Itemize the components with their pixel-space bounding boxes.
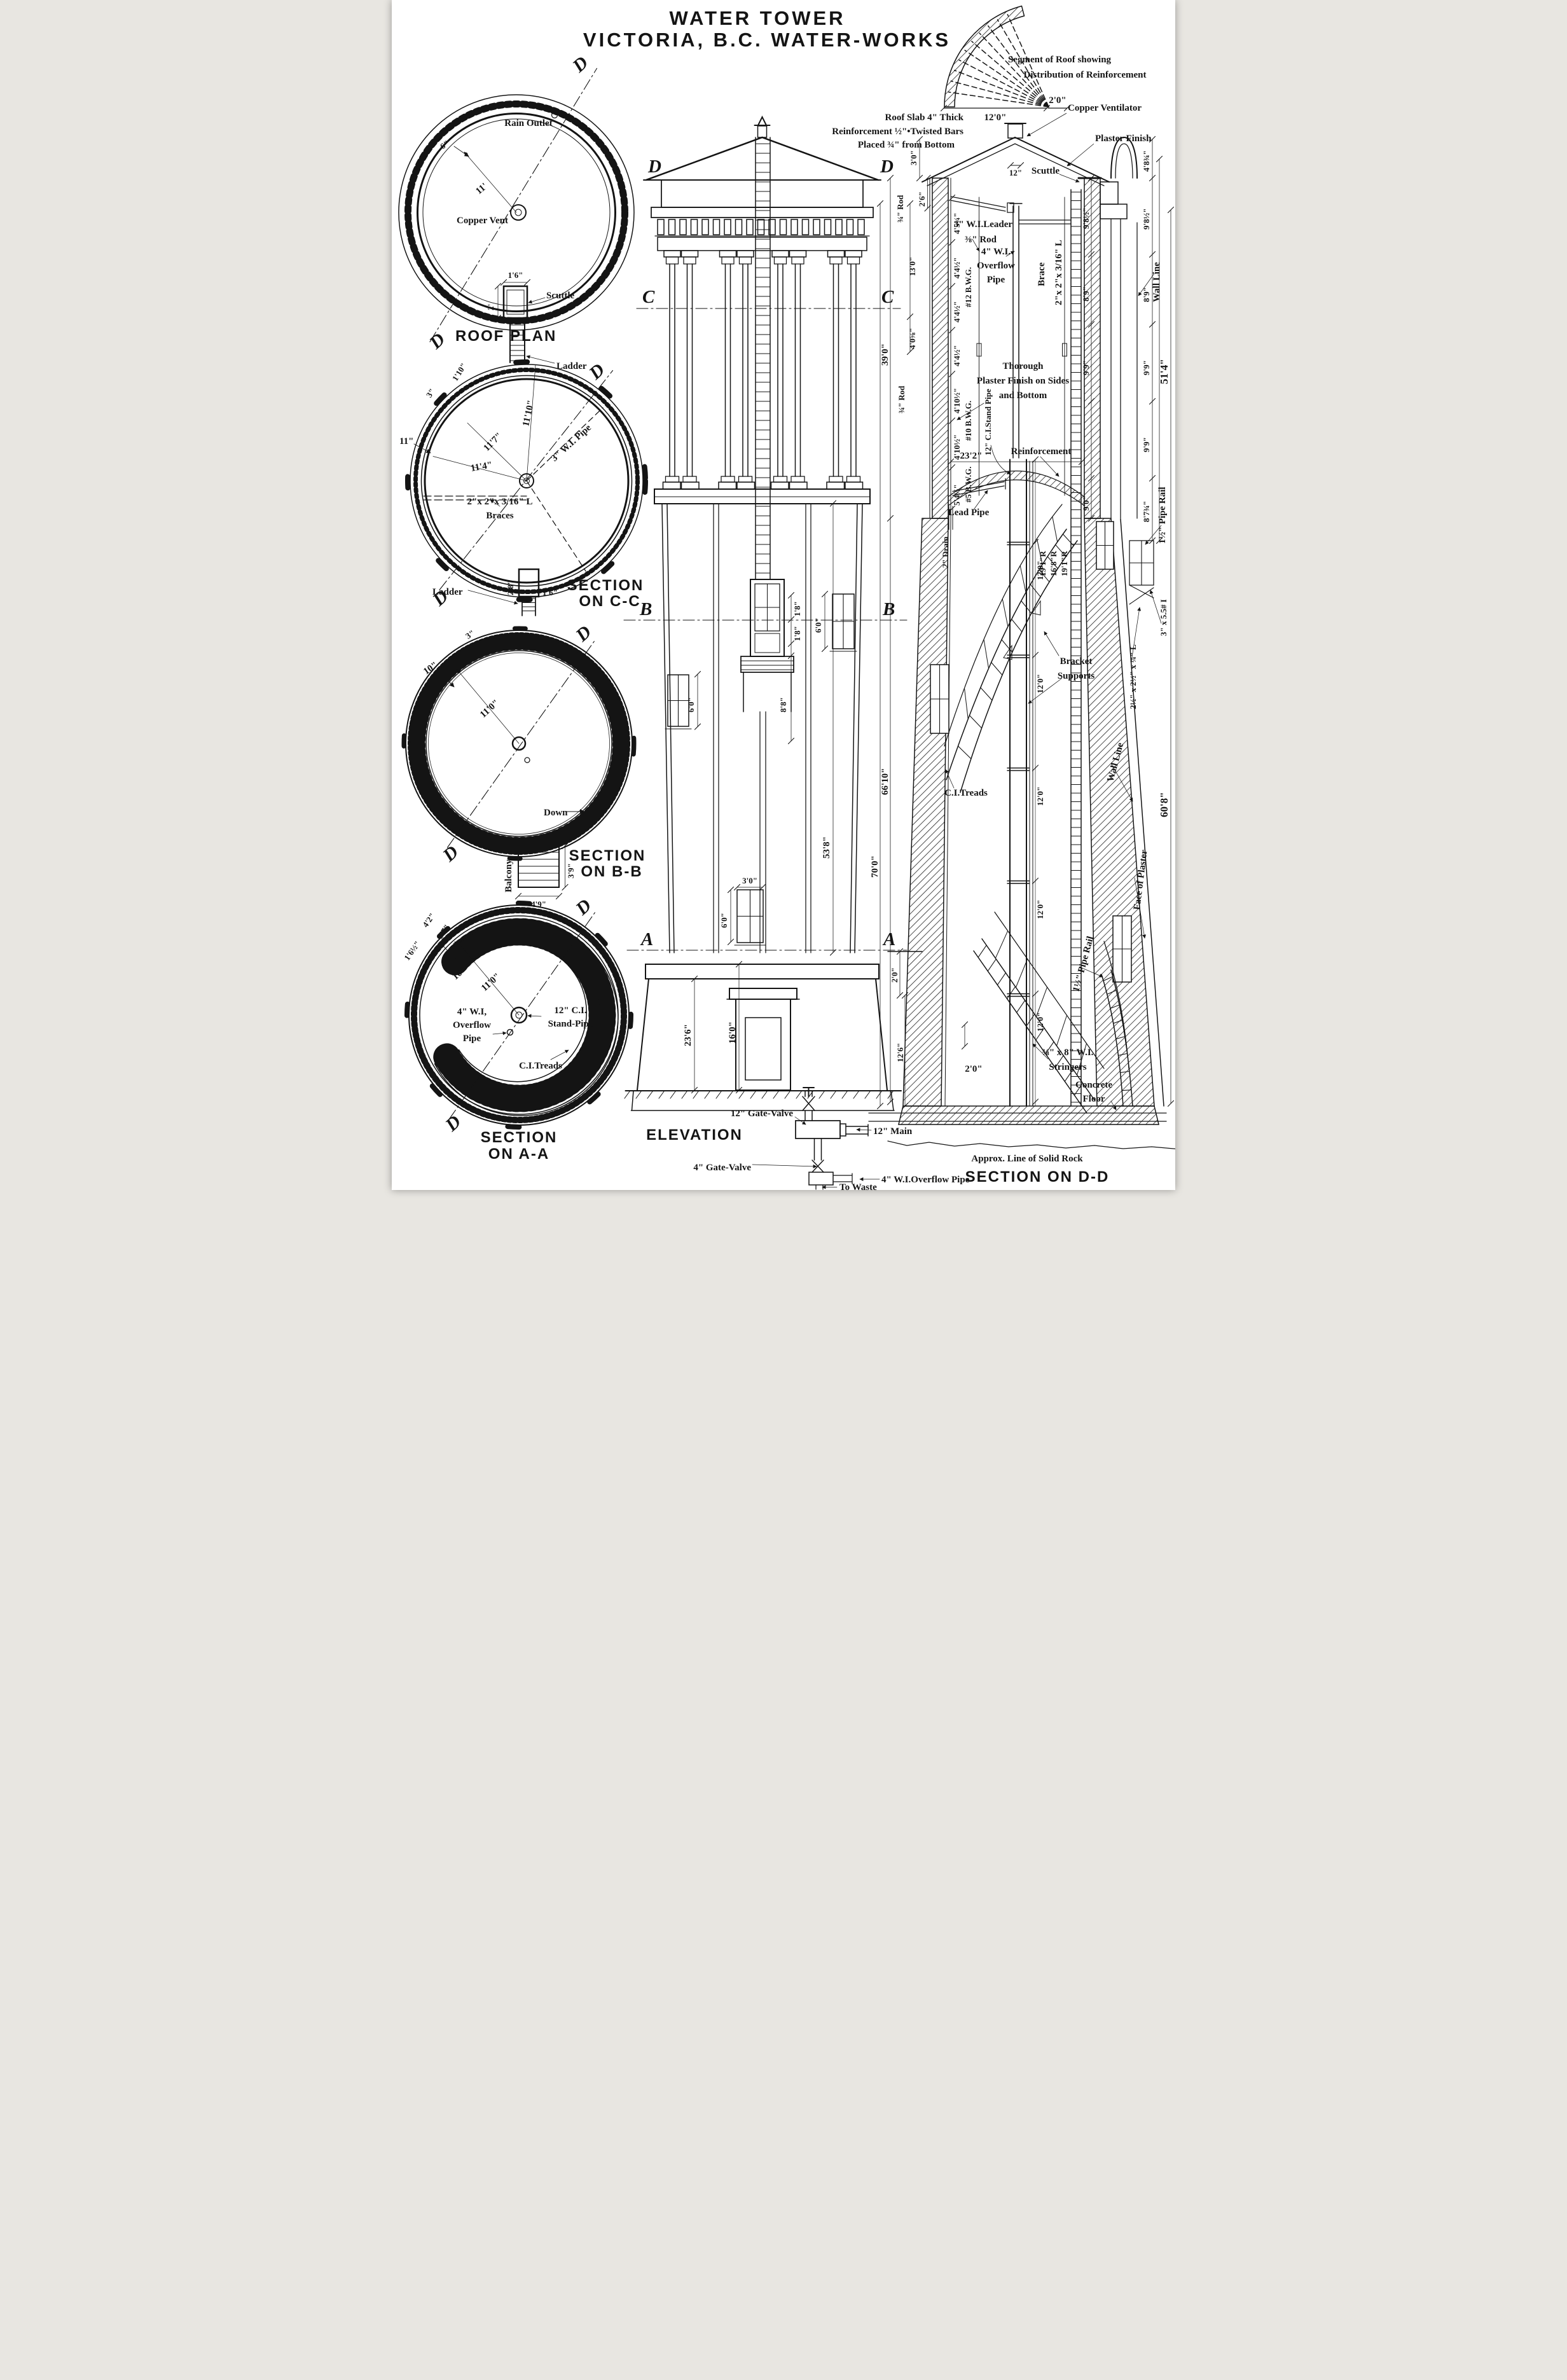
- dd-lead: Lead Pipe: [948, 508, 990, 518]
- dd-reinf: Reinforcement: [1011, 446, 1072, 457]
- ventilator-leader: [1027, 113, 1067, 136]
- bb-radius: 11'0": [478, 698, 501, 720]
- elevation-ladder-rungs: [756, 144, 770, 573]
- dd-rail2: 1½" Pipe Rail: [1071, 935, 1096, 993]
- segment-caption2: Distribution of Reinforcement: [1023, 70, 1146, 80]
- valve-assembly: [752, 1088, 880, 1189]
- cc-brace-size: 2"x 2"x 3/16" L: [467, 497, 533, 507]
- roof-note3: Placed ¾" from Bottom: [858, 140, 955, 150]
- rp-d1: D: [569, 52, 593, 77]
- ground-hatch: [625, 1091, 893, 1098]
- aa-ov3: Pipe: [463, 1034, 481, 1044]
- el-w18a: 1'8": [792, 601, 802, 616]
- cc-dim-sc-w: 1'6": [542, 588, 558, 597]
- el-w30: 3'0": [742, 876, 757, 885]
- bb-cap2: ON B-B: [581, 863, 642, 880]
- dentil-band: [658, 219, 864, 235]
- dd-brace: Brace: [1037, 262, 1047, 286]
- dd-co5: 8'7¾": [1142, 501, 1151, 522]
- title-line2: VICTORIA, B.C. WATER-WORKS: [583, 29, 951, 51]
- dd-caption: SECTION ON D-D: [965, 1168, 1110, 1186]
- rp-dim-scuttle-w: 1'6": [508, 270, 523, 280]
- rp-scuttle: Scuttle: [546, 291, 575, 301]
- roof-note1: Roof Slab 4" Thick: [885, 113, 963, 123]
- dd-br1: Bracket: [1060, 656, 1093, 667]
- dd-dim-rise: 3'0": [909, 150, 918, 165]
- aa-sp2: Stand-Pipe: [548, 1019, 593, 1029]
- aa-d2: D: [441, 1111, 466, 1136]
- dd-total-66: 66'10": [880, 768, 890, 796]
- dd-rod34b: ¾" Rod: [897, 385, 906, 413]
- dd-sp-dim0: 12'0": [1035, 561, 1045, 580]
- dd-bwg10: #10 B.W.G.: [963, 401, 973, 441]
- aa-ov2: Overflow: [453, 1020, 491, 1030]
- dd-dim-rod: 13'0": [908, 257, 917, 276]
- segment-caption1: Segment of Roof showing: [1008, 55, 1112, 65]
- dd-ci1: 8'9": [1081, 286, 1091, 301]
- el-d1: D: [647, 156, 661, 177]
- dd-sp-dim2: 12'0": [1035, 787, 1045, 806]
- el-gate4: 4" Gate-Valve: [693, 1163, 751, 1173]
- dd-ov1: 4" W.I.: [981, 247, 1011, 257]
- roof-note2: Reinforcement ½"•Twisted Bars: [832, 127, 963, 137]
- dd-g1: 4'5¼": [952, 212, 962, 234]
- dd-dim-depth: 39'0": [880, 343, 890, 366]
- el-waste: To Waste: [839, 1182, 877, 1190]
- dd-total-right: 60'8": [1158, 792, 1170, 817]
- dd-bwg5: #5 B.W.G.: [963, 466, 973, 502]
- dd-pl3: and Bottom: [999, 391, 1047, 401]
- bb-cap1: SECTION: [569, 847, 646, 864]
- dd-basement: 12'6": [895, 1043, 905, 1062]
- el-a1: A: [640, 929, 653, 950]
- dd-co2: 8'9": [1142, 287, 1151, 302]
- dd-dim-curb: 4'0⅝": [908, 328, 917, 349]
- aa-cap2: ON A-A: [488, 1145, 549, 1163]
- rp-copper-vent: Copper Vent: [457, 216, 508, 226]
- dd-standpipe: 12" C.I.Stand Pipe: [983, 389, 993, 455]
- colonnade: [663, 251, 863, 489]
- dd-grade: 2'0": [890, 967, 899, 983]
- bb-down: Down: [544, 808, 568, 818]
- aa-radius: 11'0": [480, 971, 502, 993]
- dd-co3: 9'9": [1142, 360, 1151, 375]
- elevation-drawing: [624, 117, 907, 1189]
- dd-br2: Supports: [1058, 671, 1095, 681]
- label-plaster-finish: Plaster Finish: [1095, 134, 1152, 144]
- cc-dim-sc-h: 2'8": [506, 580, 515, 595]
- aa-dim4: 1'6½": [402, 939, 422, 962]
- dd-treads: C.I.Treads: [944, 788, 988, 798]
- dd-angle: 2½" x 2½" x ¼" L: [1128, 644, 1138, 709]
- aa-cap1: SECTION: [481, 1129, 558, 1146]
- cc-r2: 11'7": [482, 431, 504, 453]
- dd-conc1: Concrete: [1075, 1080, 1112, 1090]
- dd-conc2: Floor: [1083, 1094, 1105, 1104]
- dd-ov2: Overflow: [977, 261, 1015, 271]
- rp-dim-scuttle-h: 2': [486, 304, 495, 310]
- plaster-leader: [1067, 144, 1094, 166]
- dd-str1: ⅜" x 8" W.I.: [1042, 1048, 1094, 1058]
- el-w18b: 1'8": [792, 626, 802, 641]
- title-line1: WATER TOWER: [669, 7, 845, 29]
- cc-braces: Braces: [486, 511, 513, 521]
- dd-bwg12: #12 B.W.G.: [963, 267, 973, 307]
- bb-dim-w: 4'9": [531, 899, 546, 909]
- bb-d2: D: [439, 841, 463, 866]
- cc-dim1: 1'10": [450, 361, 469, 383]
- dd-rock: Approx. Line of Solid Rock: [971, 1154, 1083, 1164]
- cc-dim2: 3": [424, 387, 437, 399]
- dd-ci2: 9'9": [1081, 360, 1091, 375]
- el-c2: C: [881, 287, 894, 307]
- rp-d2: D: [425, 329, 450, 354]
- dd-dim-free: 2'6": [917, 191, 927, 207]
- aa-ov1: 4" W.I,: [457, 1007, 487, 1017]
- bb-d1: D: [572, 621, 596, 646]
- rp-caption: ROOF PLAN: [455, 328, 556, 345]
- rp-dim-radius: 11': [474, 181, 489, 197]
- aa-up: Up: [594, 994, 606, 1008]
- drawing-sheet: WATER TOWER VICTORIA, B.C. WATER-WORKS S…: [392, 0, 1175, 1190]
- aa-d1: D: [572, 895, 596, 920]
- el-c1: C: [642, 287, 655, 307]
- dd-g3: 4'4½": [952, 301, 962, 322]
- dd-r2: 16'8"R: [1049, 551, 1058, 576]
- dd-r3: 19'1"R: [1060, 551, 1069, 576]
- dd-rail1: 1½" Pipe Rail: [1157, 487, 1168, 544]
- segment-dim-span: 12'0": [984, 113, 1007, 123]
- cc-cap2: ON C-C: [579, 593, 640, 610]
- dd-ci3: 9'0": [1081, 495, 1091, 511]
- dd-wall-line1: Wall Line: [1152, 262, 1162, 302]
- el-shaft: 53'8": [822, 836, 832, 859]
- aa-sp1: 12" C.I.: [554, 1006, 586, 1016]
- rp-rain-outlet: Rain Outlet: [504, 118, 552, 128]
- dd-scuttle: Scuttle: [1032, 166, 1060, 176]
- aa-treads: C.I.Treads: [519, 1061, 562, 1071]
- dd-sp-dim4: 12'0": [1035, 1013, 1045, 1032]
- dd-g4: 4'4½": [952, 345, 962, 366]
- el-a2: A: [882, 929, 895, 950]
- dd-pl1: Thorough: [1003, 361, 1044, 371]
- el-w60r: 6'0": [813, 618, 823, 633]
- dd-sp-dim3: 12'0": [1035, 900, 1045, 919]
- dd-total-wall: 51'4": [1158, 359, 1170, 384]
- dd-g2: 4'4½": [952, 257, 962, 279]
- bb-dim-h: 3'9": [566, 863, 576, 878]
- el-caption: ELEVATION: [646, 1126, 743, 1144]
- dd-ibeam: 3" x 5.5# I: [1159, 599, 1168, 636]
- el-b2: B: [882, 599, 895, 619]
- dd-ov3: Pipe: [987, 275, 1005, 285]
- dd-co0: 4'8¾": [1142, 150, 1151, 172]
- dd-ci0: 9'8½": [1081, 207, 1091, 229]
- el-w88: 8'8": [778, 697, 788, 712]
- dd-drain: 2" Drain: [941, 536, 950, 568]
- cc-cap1: SECTION: [567, 577, 644, 594]
- el-gate12: 12" Gate-Valve: [731, 1109, 794, 1119]
- segment-dim-overhang: 2'0": [1049, 95, 1067, 106]
- dd-brace-size: 2"x 2"x 3/16" L: [1054, 240, 1064, 305]
- dd-rod38: ⅜" Rod: [965, 235, 997, 245]
- dd-big20: 2'0": [965, 1064, 983, 1074]
- bb-balcony: Balcony: [504, 859, 514, 892]
- rp-ladder: Ladder: [556, 361, 587, 371]
- dd-sp-dim1: 12'0": [1035, 674, 1045, 693]
- cc-r3: 11'4": [470, 460, 493, 474]
- aa-dim1: 4'2": [420, 911, 437, 929]
- el-w60c: 6'0": [719, 913, 729, 928]
- label-copper-ventilator: Copper Ventilator: [1068, 103, 1142, 113]
- el-main12: 12" Main: [873, 1126, 913, 1137]
- el-w60l: 6'0": [686, 697, 696, 712]
- dd-dim-span: 23'2": [960, 451, 983, 461]
- dd-pl2: Plaster Finish on Sides: [977, 376, 1069, 386]
- dd-rod34a: ¾" Rod: [895, 195, 905, 223]
- dd-str2: Stringers: [1049, 1062, 1086, 1072]
- dd-g5: 4'10½": [952, 388, 962, 413]
- cc-pipe: 3" W.I. Pipe: [549, 422, 593, 464]
- roof-plan-drawing: [399, 69, 634, 364]
- dd-leader: 3" W.I.Leader: [954, 219, 1012, 230]
- dd-total-70: 70'0": [870, 855, 880, 878]
- el-base-h: 16'0": [728, 1021, 738, 1044]
- dd-co4: 9'9": [1142, 437, 1151, 452]
- cc-r1: 11'10": [521, 399, 536, 427]
- cc-dim-wall: 11": [399, 436, 414, 446]
- dd-g7: 5'4½": [952, 484, 962, 506]
- dd-dim-vent: 12": [1009, 168, 1022, 177]
- el-d2: D: [880, 156, 894, 177]
- line-art: [399, 6, 1175, 1190]
- el-ovf4: 4" W.I.Overflow Pipe: [881, 1175, 970, 1185]
- dd-co1: 9'8½": [1142, 208, 1151, 230]
- el-base-t: 23'6": [683, 1024, 693, 1046]
- el-b1: B: [639, 599, 652, 619]
